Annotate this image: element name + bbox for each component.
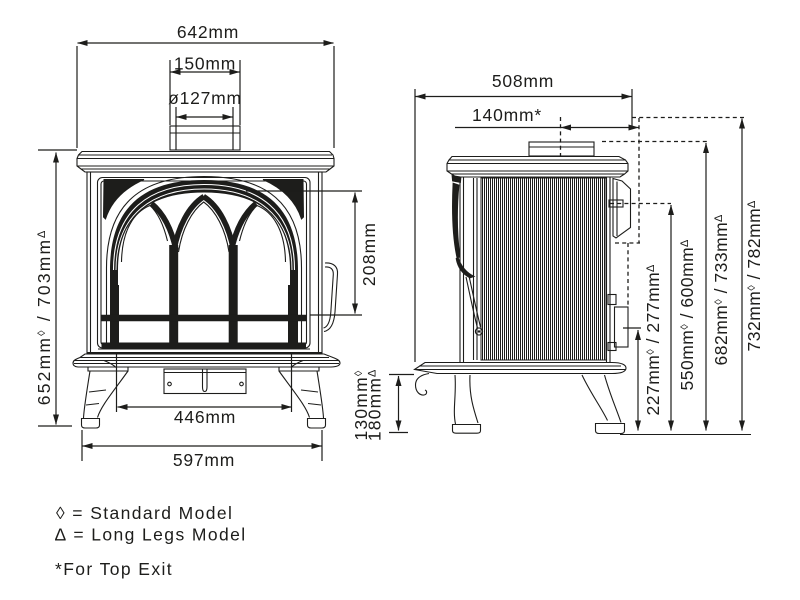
svg-text:732mm◊ / 782mm∆: 732mm◊ / 782mm∆ xyxy=(744,201,764,352)
svg-text:682mm◊ / 733mm∆: 682mm◊ / 733mm∆ xyxy=(711,215,731,366)
svg-text:*For Top Exit: *For Top Exit xyxy=(55,559,173,579)
svg-text:150mm: 150mm xyxy=(174,54,236,74)
svg-text:◊ = Standard Model: ◊ = Standard Model xyxy=(56,503,233,523)
svg-text:550mm◊ / 600mm∆: 550mm◊ / 600mm∆ xyxy=(677,240,697,391)
svg-text:652mm◊ / 703mm∆: 652mm◊ / 703mm∆ xyxy=(34,229,54,405)
svg-text:180mm∆: 180mm∆ xyxy=(365,369,385,441)
svg-text:446mm: 446mm xyxy=(174,407,236,427)
svg-text:ø127mm: ø127mm xyxy=(168,88,242,108)
svg-text:140mm*: 140mm* xyxy=(472,105,542,125)
svg-text:∆ = Long Legs Model: ∆ = Long Legs Model xyxy=(55,525,247,545)
svg-text:208mm: 208mm xyxy=(359,222,379,286)
svg-text:597mm: 597mm xyxy=(173,450,235,470)
svg-text:508mm: 508mm xyxy=(492,71,554,91)
svg-text:227mm◊ / 277mm∆: 227mm◊ / 277mm∆ xyxy=(643,265,663,416)
svg-text:642mm: 642mm xyxy=(177,22,239,42)
